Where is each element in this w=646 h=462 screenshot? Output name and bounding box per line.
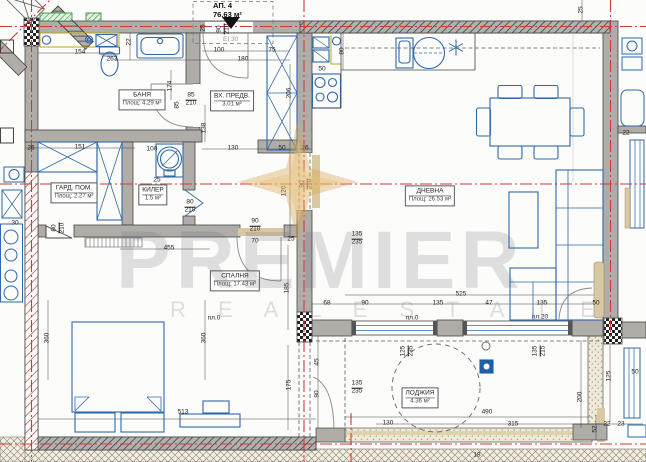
apartment-area: 76.63 м² <box>213 10 242 19</box>
floorplan-page: PREMIER R E A L E S T A T E АП. 4 76.63 … <box>0 0 646 462</box>
kitchen-fixtures <box>312 33 475 108</box>
fire-rating-label: EI 30 <box>223 36 238 43</box>
water-heater-icon <box>156 144 183 177</box>
apartment-number: АП. 4 <box>213 1 242 10</box>
dining-table-set <box>477 86 585 160</box>
cooktop-star-icon <box>449 40 463 56</box>
bathroom-fixtures <box>40 33 183 76</box>
loggia-symbols <box>392 342 493 432</box>
neighbour-corner-structure <box>0 0 93 75</box>
vent-blocks <box>40 13 101 21</box>
floor-drain-icon <box>480 360 493 373</box>
watermark-subtitle: R E A L E S T A T E <box>170 297 608 323</box>
watermark-text: PREMIER <box>116 220 525 302</box>
apartment-titleblock: АП. 4 76.63 м² <box>213 1 242 19</box>
